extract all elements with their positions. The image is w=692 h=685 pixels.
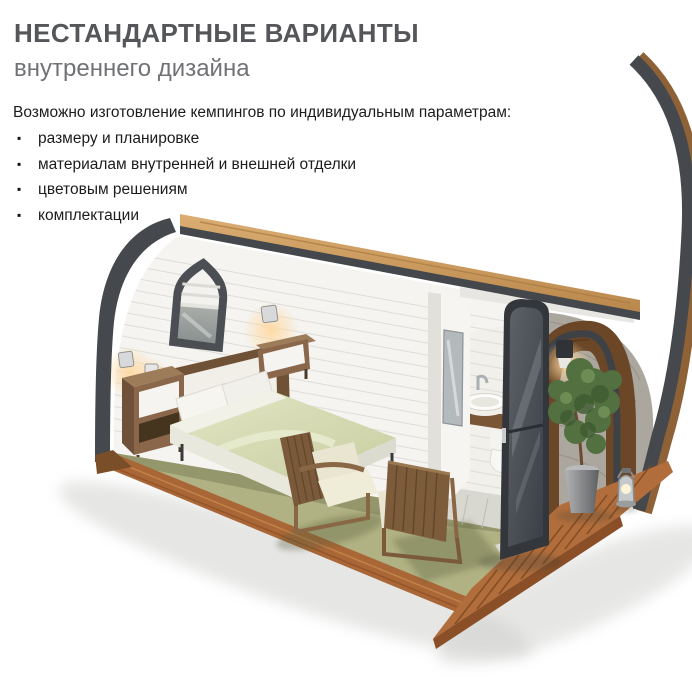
feature-item: ▪ цветовым решениям	[17, 181, 692, 200]
faucet	[478, 376, 487, 390]
pod-end-wall	[538, 312, 653, 560]
pod-shell	[95, 214, 640, 474]
door-handle	[502, 428, 506, 443]
headboard	[158, 342, 290, 442]
bullet-marker: ▪	[17, 181, 38, 198]
walnut-arch	[544, 336, 621, 560]
feature-item-label: цветовым решениям	[38, 181, 188, 200]
bullet-marker: ▪	[17, 156, 38, 173]
vanity-sink	[462, 376, 520, 431]
page-title: НЕСТАНДАРТНЫЕ ВАРИАНТЫ	[14, 20, 692, 47]
intro-text: Возможно изготовление кемпингов по индив…	[13, 104, 692, 123]
toilet	[490, 430, 513, 473]
feature-item-label: комплектации	[38, 207, 139, 226]
potted-plant	[548, 358, 622, 522]
mirror	[443, 330, 463, 426]
pillow	[176, 383, 232, 421]
feature-item-label: материалам внутренней и внешней отделки	[38, 156, 356, 175]
page-subtitle: внутреннего дизайна	[14, 56, 692, 81]
partition-wall	[428, 292, 470, 499]
deck	[433, 461, 673, 649]
sconce-light	[542, 340, 590, 388]
feature-item: ▪ комплектации	[17, 207, 692, 226]
feature-item: ▪ материалам внутренней и внешней отделк…	[17, 156, 692, 175]
wall-lamp-right	[243, 302, 299, 358]
ribbed-lining	[540, 312, 653, 509]
bathroom-floor	[436, 486, 512, 530]
feature-list: ▪ размеру и планировке ▪ материалам внут…	[17, 130, 692, 225]
bullet-marker: ▪	[17, 207, 38, 224]
roman-shade	[180, 267, 221, 309]
text-block: НЕСТАНДАРТНЫЕ ВАРИАНТЫ внутреннего дизай…	[0, 20, 692, 225]
back-wall	[100, 236, 634, 525]
lantern	[613, 468, 639, 512]
arched-window	[169, 256, 231, 352]
door-threshold	[495, 530, 553, 563]
floor-edge-wood	[112, 455, 470, 616]
chair-left	[273, 432, 386, 558]
floor	[112, 453, 540, 616]
chair-right	[378, 462, 502, 582]
feature-item: ▪ размеру и планировке	[17, 130, 692, 149]
page: НЕСТАНДАРТНЫЕ ВАРИАНТЫ внутреннего дизай…	[0, 0, 692, 685]
nightstand-left	[122, 358, 184, 465]
wall-lamp-left	[104, 346, 156, 398]
pillow	[222, 371, 272, 405]
soffit-fascia	[460, 287, 634, 323]
ground-shadow	[47, 455, 692, 685]
entrance-door	[478, 299, 562, 571]
feature-item-label: размеру и планировке	[38, 130, 199, 149]
arch-trim	[538, 334, 617, 558]
nightstand-right	[256, 334, 316, 391]
bullet-marker: ▪	[17, 130, 38, 147]
bed	[170, 371, 396, 515]
shell-left-arch	[95, 218, 176, 462]
bathroom	[428, 292, 553, 563]
